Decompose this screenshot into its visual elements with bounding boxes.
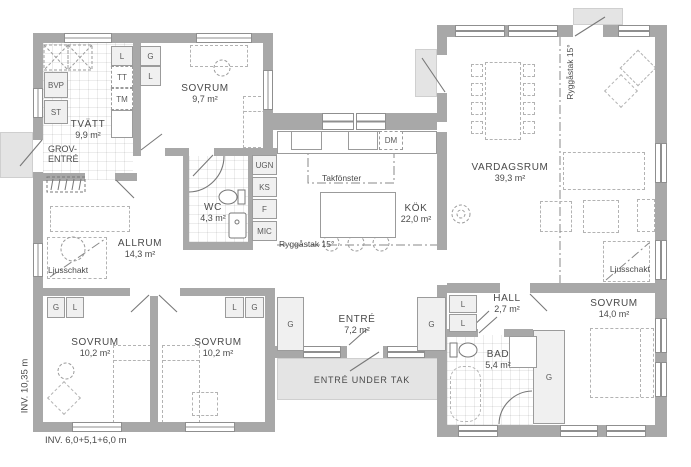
speaker-circle-outer [452,205,470,223]
dining-chair [523,121,535,134]
room-label-sovrum97: SOVRUM 9,7 m² [181,83,229,105]
wall-segment [115,173,137,181]
closet-g-sovrum102a: G [47,297,65,318]
stove [291,131,322,150]
wall-segment [437,132,447,250]
cabinet-st: ST [44,100,68,124]
window [618,25,650,37]
closet-g-entre-east: G [417,297,446,351]
window [655,362,667,397]
window [185,422,235,432]
closet-g-sovrum140: G [533,330,565,424]
window [64,33,112,43]
cabinet-bvp: BVP [44,72,68,98]
label-ljusschakt-allrum: Ljusschakt [48,265,88,275]
wall-segment [33,277,43,422]
dimension-left: INV. 10,35 m [20,359,31,414]
kitchen-island [320,192,396,238]
wall-segment [183,242,253,250]
room-label-grov-entre: GROV- ENTRÉ [48,144,79,164]
wall-segment [33,33,64,43]
dining-chair [523,102,535,115]
room-label-kok: KÖK 22,0 m² [401,203,432,225]
wall-segment [655,353,667,362]
room-label-hall: HALL 2,7 m² [493,293,520,315]
wall-segment [530,283,667,293]
wall-segment [43,173,85,181]
wall-segment [273,113,322,130]
wall-segment [437,93,447,122]
door-leaf-sovrum102a [131,295,149,312]
door-leaf-sovrum97 [141,134,162,150]
allrum-sofa [50,206,130,232]
window [455,25,505,37]
bathtub [450,366,481,422]
room-label-sovrum102b: SOVRUM 10,2 m² [194,337,242,359]
armchair [540,201,572,232]
label-takfonster: Takfönster [322,173,361,183]
window [606,425,646,437]
window [655,240,667,280]
room-label-sovrum102a: SOVRUM 10,2 m² [71,337,119,359]
sofa-table [583,200,619,233]
wall-segment [43,288,130,296]
closet-l-sovrum102b: L [225,297,244,318]
window [263,70,273,110]
wall-segment [655,183,667,240]
window [560,425,598,437]
freezer-f: F [252,199,277,219]
sofa [563,152,645,190]
window [322,113,354,130]
closet-g-entre-west: G [277,297,304,351]
double-bed-sovrum140 [590,328,654,398]
microwave-mic: MIC [252,221,277,241]
wall-segment [33,422,72,432]
closet-g-sovrum97: G [140,46,161,66]
washer-tm: TM [111,88,133,110]
wall-segment [341,346,347,358]
door-leaf-allrum [116,180,134,198]
pad-vardagsrum-west [415,49,437,97]
room-label-bad: BAD 5,4 m² [485,349,511,371]
desk-sovrum97 [190,45,248,67]
door-leaf-bad [479,317,497,333]
room-label-vardagsrum: VARDAGSRUM 39,3 m² [472,162,549,184]
dining-chair [471,64,483,77]
closet-l-sovrum97: L [140,66,161,86]
wall-segment [386,113,437,130]
label-entre-under-tak: ENTRÉ UNDER TAK [314,375,410,385]
desk-sovrum102b [192,392,218,416]
closet-l-tvatt: L [111,46,133,66]
closet-l-sovrum102a: L [66,297,84,318]
door-leaf-sovrum140 [530,294,547,311]
pad-vardagsrum-north [573,8,623,25]
wall-segment [150,296,158,422]
label-ryggastak-kok: Ryggåstak 15° [279,239,334,249]
wall-segment [183,148,189,250]
wall-segment [598,425,606,437]
label-ryggastak-vardagsrum: Ryggåstak 15° [565,44,575,99]
sink-tvatt [111,110,133,138]
wall-segment [447,283,500,293]
wall-segment [603,25,618,37]
tiles-wc [189,156,248,242]
wall-segment [133,148,141,156]
dimension-bottom: INV. 6,0+5,1+6,0 m [45,435,127,446]
pad-grov-entre [0,132,33,178]
window [655,143,667,183]
label-ljusschakt-vardagsrum: Ljusschakt [600,264,650,274]
wall-segment [558,25,573,37]
wall-segment [33,172,43,243]
wall-segment [180,288,275,296]
room-label-allrum: ALLRUM 14,3 m² [118,238,162,260]
window [508,25,558,37]
dryer-tt: TT [111,66,133,88]
wall-segment [437,37,447,55]
dining-chair [471,83,483,96]
dining-chair [471,121,483,134]
dishwasher-dm: DM [379,131,403,150]
window [33,88,43,118]
room-label-sovrum140: SOVRUM 14,0 m² [590,298,638,320]
wall-segment [263,33,273,70]
room-label-wc: WC 4,3 m² [200,202,226,224]
wall-segment [646,425,667,437]
wall-segment [265,288,275,422]
armchair [637,199,655,232]
window [655,318,667,353]
wall-segment [112,33,196,43]
ljusschakt-box-vardagsrum [603,241,650,282]
closet-l-hall-2: L [449,314,477,332]
dining-chair [471,102,483,115]
oven-ugn: UGN [252,155,277,175]
room-label-entre: ENTRÉ 7,2 m² [339,314,376,336]
floor-plan: BVPSTLTTTMGLUGNKSFMICDMGLLGGGLLG TVÄTT 9… [0,0,691,467]
window [303,346,341,358]
window [458,425,498,437]
dining-chair [523,64,535,77]
kitchen-sink [348,131,378,150]
wall-segment [437,25,455,37]
window [72,422,122,432]
window [356,113,386,130]
dining-chair [523,83,535,96]
chair-sovrum102a [58,363,74,379]
room-label-tvatt: TVÄTT 9,9 m² [71,119,106,141]
wall-segment [122,422,185,432]
wall-segment [655,25,667,143]
closet-l-hall-1: L [449,295,477,313]
dining-table [485,62,521,140]
wall-segment [498,425,560,437]
door-leaf-sovrum102b [159,295,177,312]
chair-sovrum102a [47,381,81,415]
wall-segment [437,425,458,437]
window [33,243,43,277]
closet-g-sovrum102b: G [245,297,264,318]
wall-segment [235,422,275,432]
speaker-circle-inner [457,210,465,218]
sink-bad [509,336,537,368]
window [196,33,252,43]
fridge-ks: KS [252,177,277,197]
